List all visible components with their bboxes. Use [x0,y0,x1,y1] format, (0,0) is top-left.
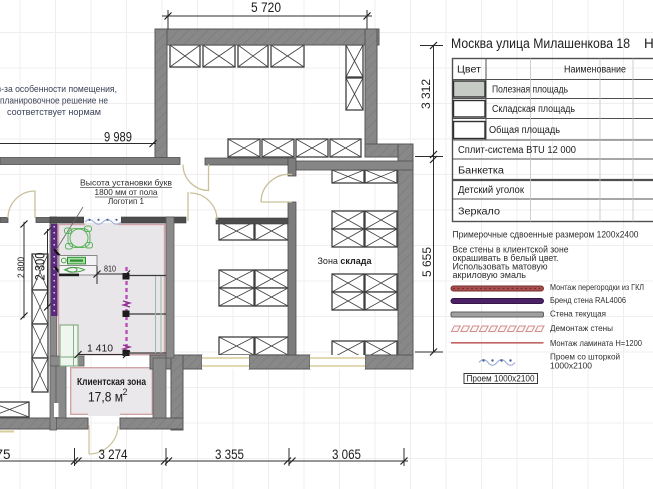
svg-text:Цвет: Цвет [457,65,481,76]
svg-text:2 300: 2 300 [33,253,48,281]
svg-text:17,8 м: 17,8 м [88,389,123,405]
svg-text:Проем со шторкой: Проем со шторкой [550,353,620,362]
svg-text:Наименование: Наименование [564,65,626,76]
svg-text:Демонтаж стены: Демонтаж стены [550,324,613,333]
svg-text:Из-за особенности помещения,: Из-за особенности помещения, [0,84,117,95]
svg-text:9 989: 9 989 [104,130,132,145]
svg-text:2: 2 [122,387,127,397]
svg-text:Зона склада: Зона склада [318,256,373,267]
svg-text:Примерочные сдвоенные размером: Примерочные сдвоенные размером 1200x2400 [453,230,639,241]
svg-text:Банкетка: Банкетка [458,166,504,177]
svg-text:Зеркало: Зеркало [458,207,500,218]
svg-text:3 065: 3 065 [332,447,361,462]
svg-text:5 720: 5 720 [251,0,281,15]
svg-text:Монтаж перегородки из ГКЛ: Монтаж перегородки из ГКЛ [550,283,644,292]
svg-text:Бренд стена RAL4006: Бренд стена RAL4006 [550,296,626,305]
svg-text:Полезная площадь: Полезная площадь [492,85,568,96]
svg-text:Москва улица Милашенкова 18: Москва улица Милашенкова 18 [451,36,630,51]
svg-text:Складская площадь: Складская площадь [492,104,575,115]
svg-text:Н-: Н- [644,36,653,51]
svg-text:планировочное решение не: планировочное решение не [0,96,108,107]
svg-text:3 355: 3 355 [215,447,244,462]
svg-text:соответствует нормам: соответствует нормам [7,107,101,118]
svg-text:1 410: 1 410 [87,344,113,355]
svg-text:Стена текущая: Стена текущая [550,310,606,319]
svg-text:810: 810 [104,264,116,274]
svg-text:75: 75 [0,447,11,462]
svg-text:акриловую эмаль: акриловую эмаль [453,270,527,280]
svg-text:2 800: 2 800 [16,257,26,278]
svg-text:Проем 1000x2100: Проем 1000x2100 [467,374,535,385]
svg-text:1000x2100: 1000x2100 [550,362,592,371]
svg-text:Клиентская зона: Клиентская зона [77,376,146,388]
svg-text:3 312: 3 312 [419,79,433,109]
svg-text:Общая площадь: Общая площадь [489,124,560,136]
svg-text:5 655: 5 655 [420,247,434,277]
svg-text:Детский уголок: Детский уголок [458,185,525,196]
svg-text:Сплит-система BTU 12 000: Сплит-система BTU 12 000 [458,145,576,156]
svg-text:Высота установки букв: Высота установки букв [80,178,172,188]
svg-text:Монтаж ламината H=1200: Монтаж ламината H=1200 [550,339,642,348]
svg-text:Логотип 1: Логотип 1 [108,196,144,206]
svg-text:3 274: 3 274 [99,447,128,462]
